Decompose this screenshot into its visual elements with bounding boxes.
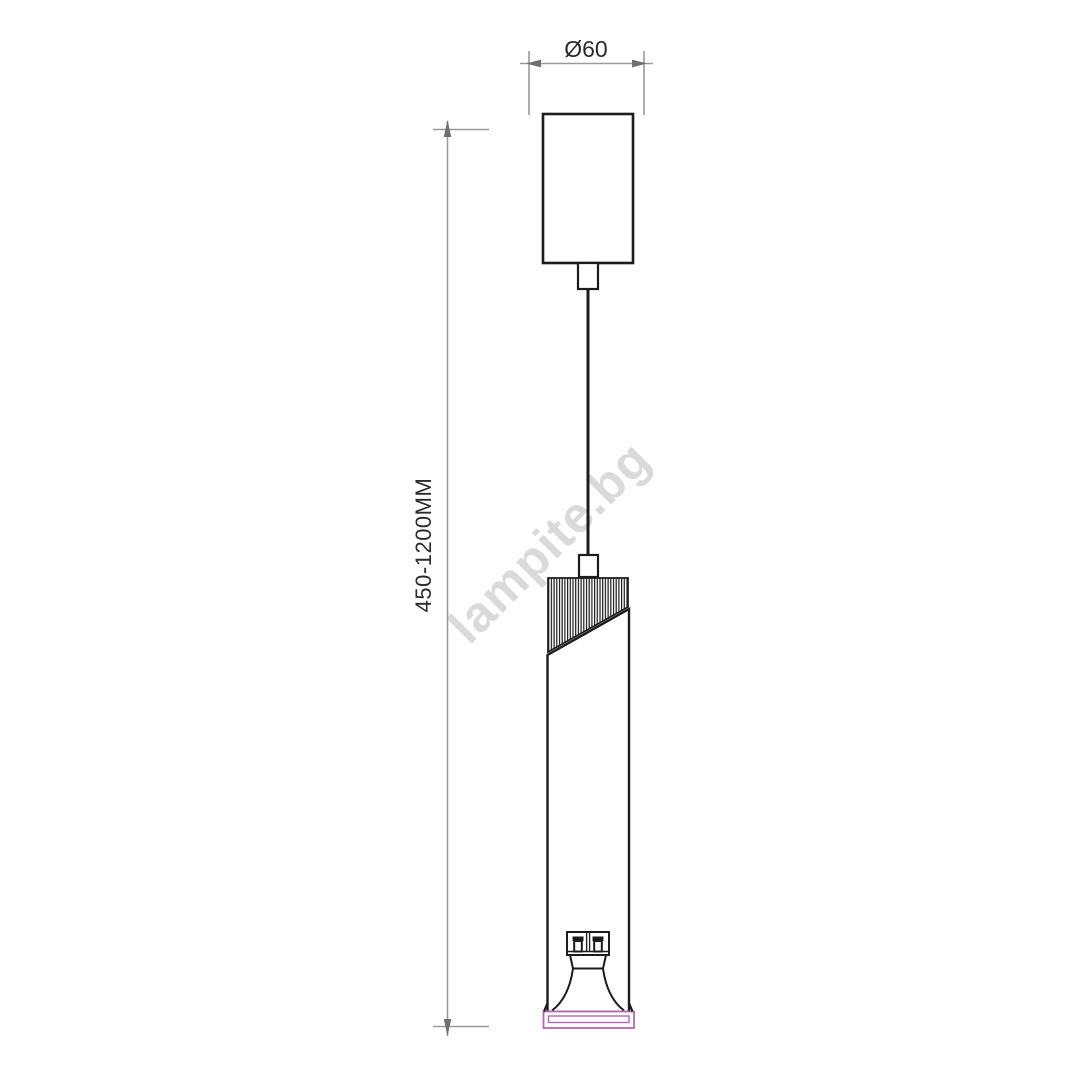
gu10-pin-right-body <box>594 941 602 952</box>
canopy-box <box>543 114 633 263</box>
ceiling-canopy <box>543 114 633 289</box>
diameter-dimension: Ø60 <box>520 36 653 115</box>
gu10-pin-left-body <box>574 941 582 952</box>
canopy-strain-relief <box>578 263 598 289</box>
arrowhead-up-icon <box>444 120 452 137</box>
trim-ring-inner <box>549 1016 630 1023</box>
height-label: 450-1200MM <box>411 478 436 613</box>
arrowhead-down-icon <box>444 1019 452 1036</box>
technical-drawing-page: lampite.bg Ø60 450-1200MM <box>0 0 1080 1080</box>
cable-connector <box>579 555 598 577</box>
pendant-lamp-dimension-drawing: lampite.bg Ø60 450-1200MM <box>0 0 1080 1080</box>
diameter-label: Ø60 <box>564 36 607 62</box>
